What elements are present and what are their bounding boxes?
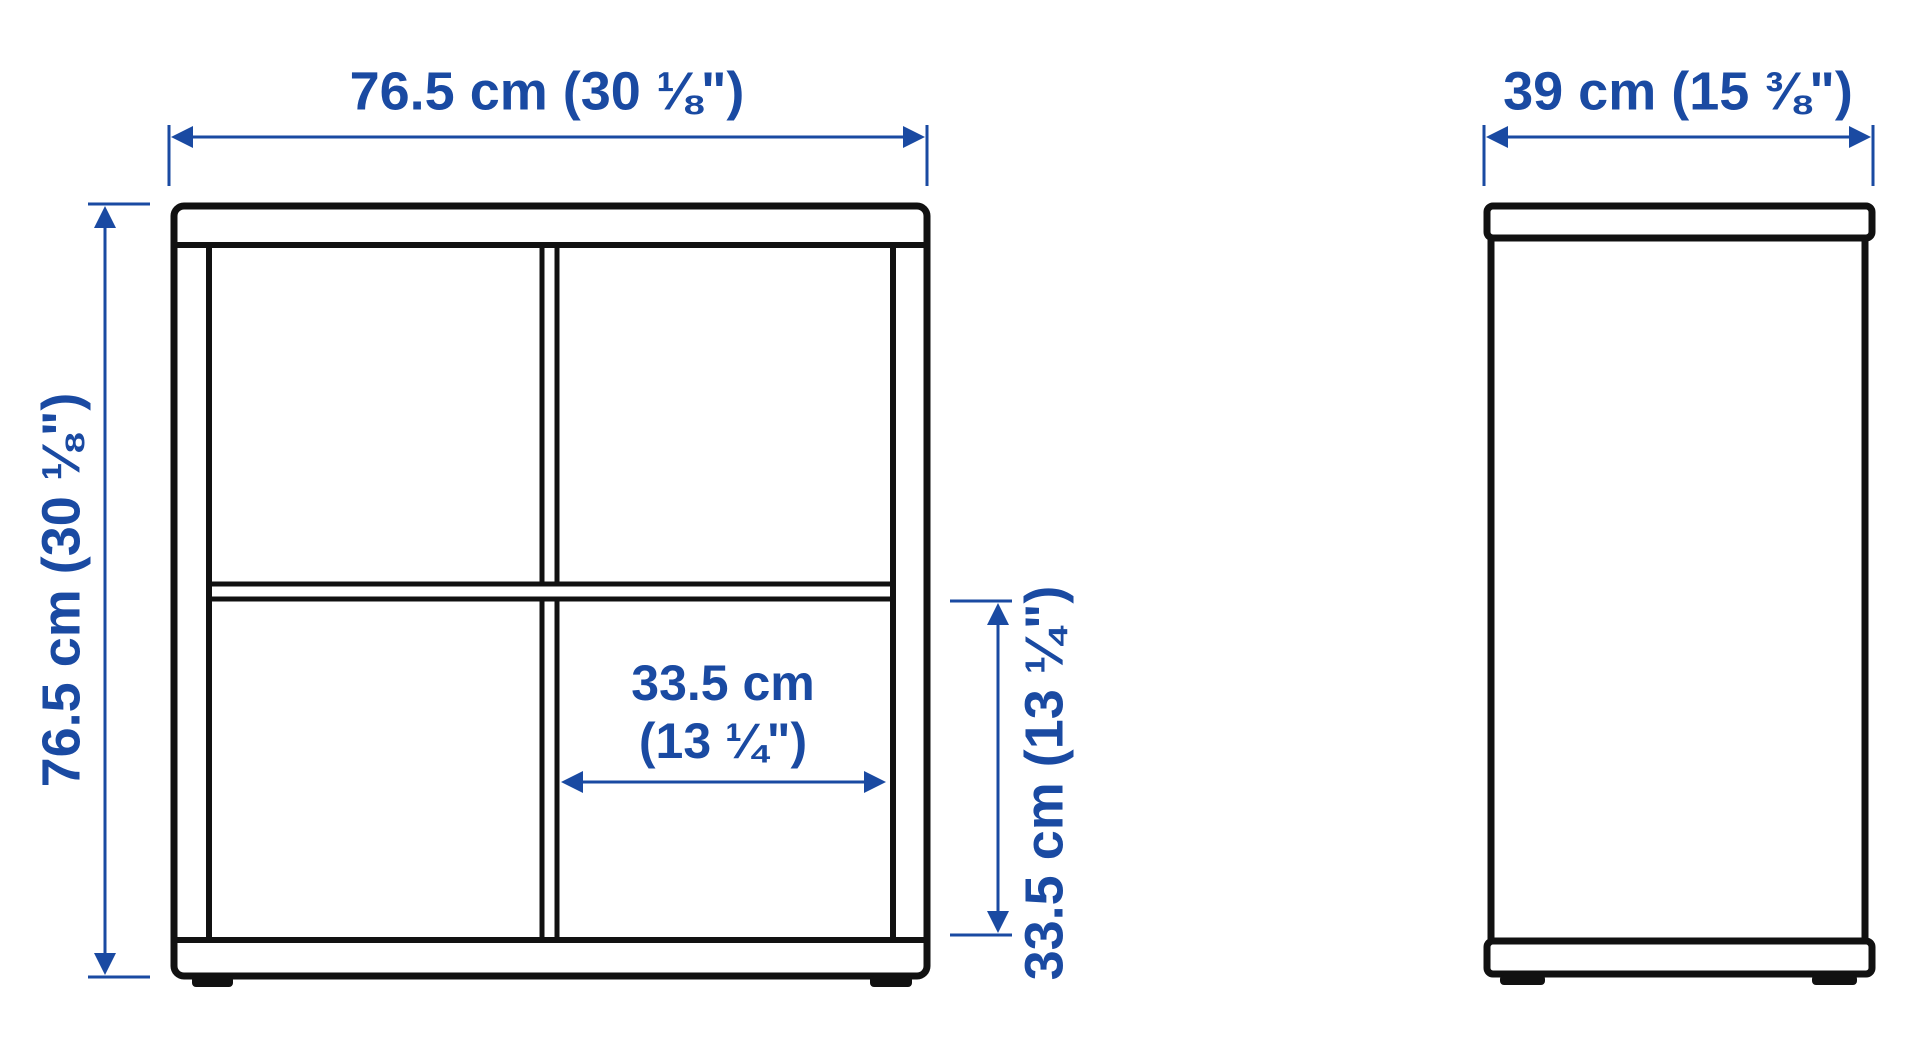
dim-front-width-arrowhead-right [903, 126, 925, 148]
side-left-foot [1500, 975, 1545, 985]
front-left-foot [192, 976, 233, 987]
front-width-label: 76.5 cm (30 ⅛") [350, 64, 745, 121]
product-dimension-diagram: 76.5 cm (30 ⅛") 39 cm (15 ⅜") 76.5 cm (3… [0, 0, 1920, 1057]
dim-front-height-arrowhead-top [94, 206, 116, 228]
front-height-label: 76.5 cm (30 ⅛") [34, 393, 91, 788]
side-top-panel [1487, 206, 1872, 238]
dim-front-width-arrow [169, 125, 927, 186]
cell-width-label-line2: (13 ¼") [639, 715, 807, 768]
side-right-foot [1812, 975, 1857, 985]
dim-cell-width-arrowhead-right [864, 771, 886, 793]
dim-side-depth-arrowhead-left [1486, 126, 1508, 148]
front-right-foot [870, 976, 912, 987]
dim-front-width-arrowhead-left [171, 126, 193, 148]
dim-cell-width-arrow [561, 771, 886, 793]
dim-side-depth-arrow [1484, 125, 1873, 186]
dim-side-depth-arrowhead-right [1849, 126, 1871, 148]
dim-front-height-arrow [88, 204, 150, 977]
dim-front-height-arrowhead-bottom [94, 953, 116, 975]
side-view-drawing [1487, 206, 1872, 985]
dim-cell-height-arrowhead-bottom [987, 911, 1009, 933]
front-outer-frame [174, 206, 927, 976]
dim-cell-height-arrow [950, 601, 1012, 935]
front-view-drawing [174, 206, 927, 987]
side-depth-label: 39 cm (15 ⅜") [1503, 64, 1853, 121]
cell-height-label: 33.5 cm (13 ¼") [1017, 586, 1074, 981]
dimension-drawing-svg [0, 0, 1920, 1057]
dim-cell-height-arrowhead-top [987, 603, 1009, 625]
side-bottom-panel [1487, 941, 1872, 974]
dim-cell-width-arrowhead-left [561, 771, 583, 793]
cell-width-label-line1: 33.5 cm [631, 657, 814, 710]
